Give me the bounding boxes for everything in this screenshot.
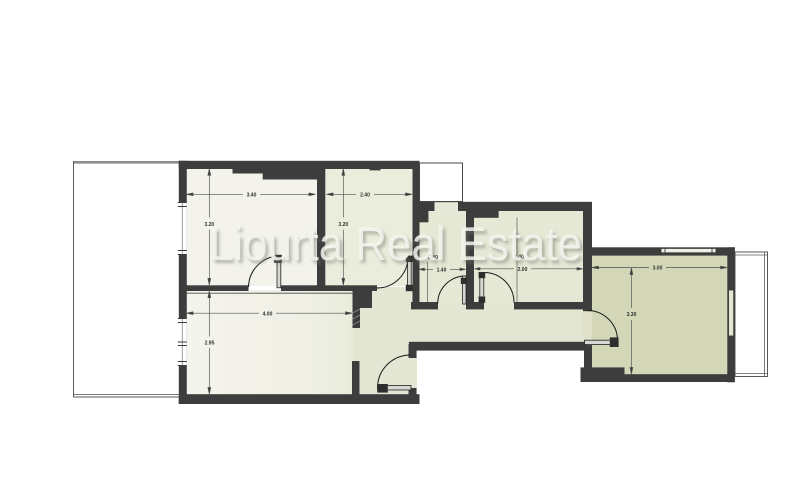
svg-text:Liourta Real Estate: Liourta Real Estate xyxy=(209,218,582,271)
svg-text:2.95: 2.95 xyxy=(205,341,215,347)
svg-text:3.00: 3.00 xyxy=(653,266,663,272)
svg-text:3.30: 3.30 xyxy=(627,312,637,318)
svg-text:2.40: 2.40 xyxy=(360,193,370,199)
svg-text:4.00: 4.00 xyxy=(263,311,273,317)
svg-text:3.40: 3.40 xyxy=(247,193,257,199)
